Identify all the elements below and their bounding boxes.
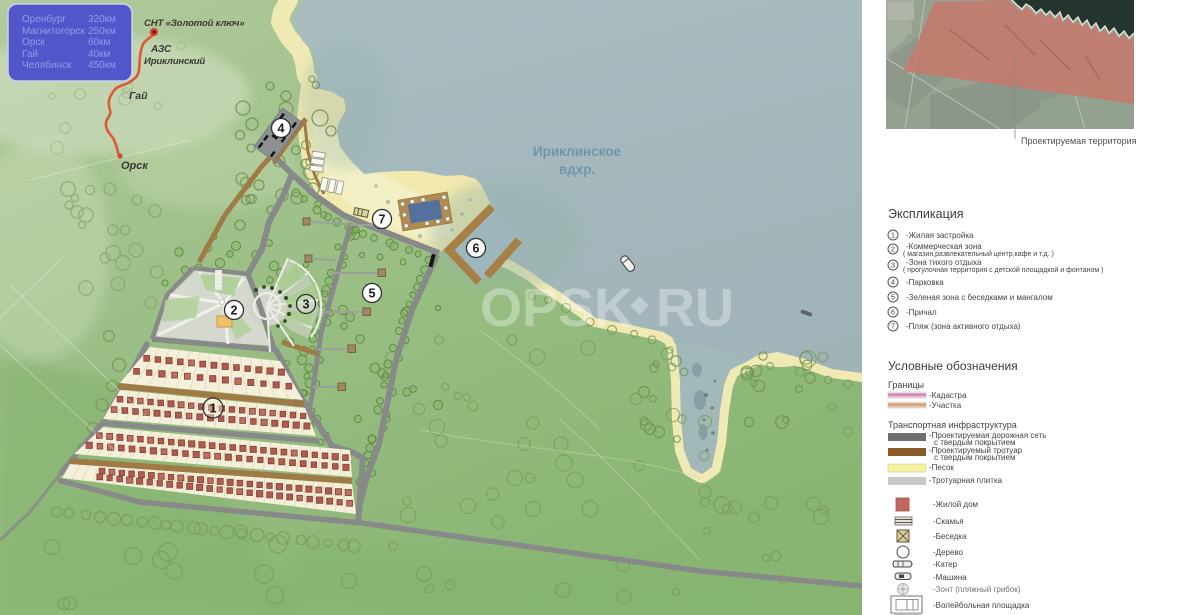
svg-text:Ириклинский: Ириклинский xyxy=(144,56,205,67)
svg-text:2: 2 xyxy=(231,303,238,317)
svg-text:Условные обозначения: Условные обозначения xyxy=(888,359,1018,373)
svg-text:АЗС: АЗС xyxy=(150,44,172,55)
svg-text:вдхр.: вдхр. xyxy=(559,162,595,177)
svg-text:-Жилая застройка: -Жилая застройка xyxy=(906,231,974,240)
svg-text:6: 6 xyxy=(473,241,480,255)
svg-text:Границы: Границы xyxy=(888,380,924,390)
svg-text:-Катер: -Катер xyxy=(933,560,958,569)
svg-text:-Беседка: -Беседка xyxy=(933,532,967,541)
svg-text:-Дерево: -Дерево xyxy=(933,548,964,557)
svg-text:-Зонт (пляжный грибок): -Зонт (пляжный грибок) xyxy=(933,585,1021,594)
svg-text:OPSK: OPSK xyxy=(480,278,633,338)
svg-text:Челябинск: Челябинск xyxy=(22,59,72,71)
svg-text:Магнитогорск: Магнитогорск xyxy=(22,26,85,37)
svg-text:( прогулочная территория с дет: ( прогулочная территория с детской площа… xyxy=(903,266,1104,274)
svg-text:с твердым покрытием: с твердым покрытием xyxy=(934,453,1015,462)
svg-text:7: 7 xyxy=(379,212,386,226)
svg-text:( магазин,развлекательный цент: ( магазин,развлекательный центр,кафе и т… xyxy=(903,250,1054,258)
svg-text:40км: 40км xyxy=(88,49,110,60)
svg-text:1: 1 xyxy=(210,401,217,415)
svg-text:-Зеленая зона с беседками и ма: -Зеленая зона с беседками и мангалом xyxy=(906,293,1053,302)
svg-text:-Скамья: -Скамья xyxy=(933,517,964,526)
svg-text:4: 4 xyxy=(278,121,285,135)
svg-text:Орск: Орск xyxy=(22,37,45,48)
svg-text:4: 4 xyxy=(891,278,895,287)
svg-text:Гай: Гай xyxy=(22,49,38,60)
svg-text:-Зона тихого отдыха: -Зона тихого отдыха xyxy=(906,258,982,267)
svg-text:Ириклинское: Ириклинское xyxy=(533,144,622,159)
svg-text:-Кадастра: -Кадастра xyxy=(929,391,967,400)
svg-text:1: 1 xyxy=(891,231,895,240)
svg-text:-Пляж (зона активного отдыха): -Пляж (зона активного отдыха) xyxy=(906,322,1021,331)
svg-text:-Парковка: -Парковка xyxy=(906,278,944,287)
svg-text:6: 6 xyxy=(891,308,895,317)
svg-text:7: 7 xyxy=(891,322,895,331)
svg-text:-Тротуарная плитка: -Тротуарная плитка xyxy=(929,476,1003,485)
svg-text:-Машина: -Машина xyxy=(933,573,967,582)
svg-text:Проектируемая территория: Проектируемая территория xyxy=(1021,136,1137,146)
svg-text:60км: 60км xyxy=(88,37,110,48)
svg-text:Экспликация: Экспликация xyxy=(888,207,964,221)
svg-text:-Жилой дом: -Жилой дом xyxy=(933,500,978,509)
svg-text:Гай: Гай xyxy=(129,90,148,102)
svg-text:5: 5 xyxy=(891,293,895,302)
svg-text:3: 3 xyxy=(303,297,310,311)
svg-text:3: 3 xyxy=(891,261,895,270)
svg-text:-Участка: -Участка xyxy=(929,401,962,410)
svg-text:Транспортная инфраструктура: Транспортная инфраструктура xyxy=(888,420,1017,430)
svg-text:Орск: Орск xyxy=(121,160,149,172)
svg-text:-Волейбольная площадка: -Волейбольная площадка xyxy=(933,601,1030,610)
svg-text:450км: 450км xyxy=(88,60,116,71)
svg-text:2: 2 xyxy=(891,245,895,254)
svg-text:-Песок: -Песок xyxy=(929,463,954,472)
svg-text:5: 5 xyxy=(369,286,376,300)
svg-text:RU: RU xyxy=(656,278,734,338)
svg-text:320км: 320км xyxy=(88,14,116,25)
svg-text:-Коммерческая зона: -Коммерческая зона xyxy=(906,242,982,251)
svg-text:СНТ «Золотой ключ»: СНТ «Золотой ключ» xyxy=(144,18,245,29)
svg-text:250км: 250км xyxy=(88,26,116,37)
svg-text:-Причал: -Причал xyxy=(906,308,937,317)
svg-text:Оренбург: Оренбург xyxy=(22,13,66,25)
